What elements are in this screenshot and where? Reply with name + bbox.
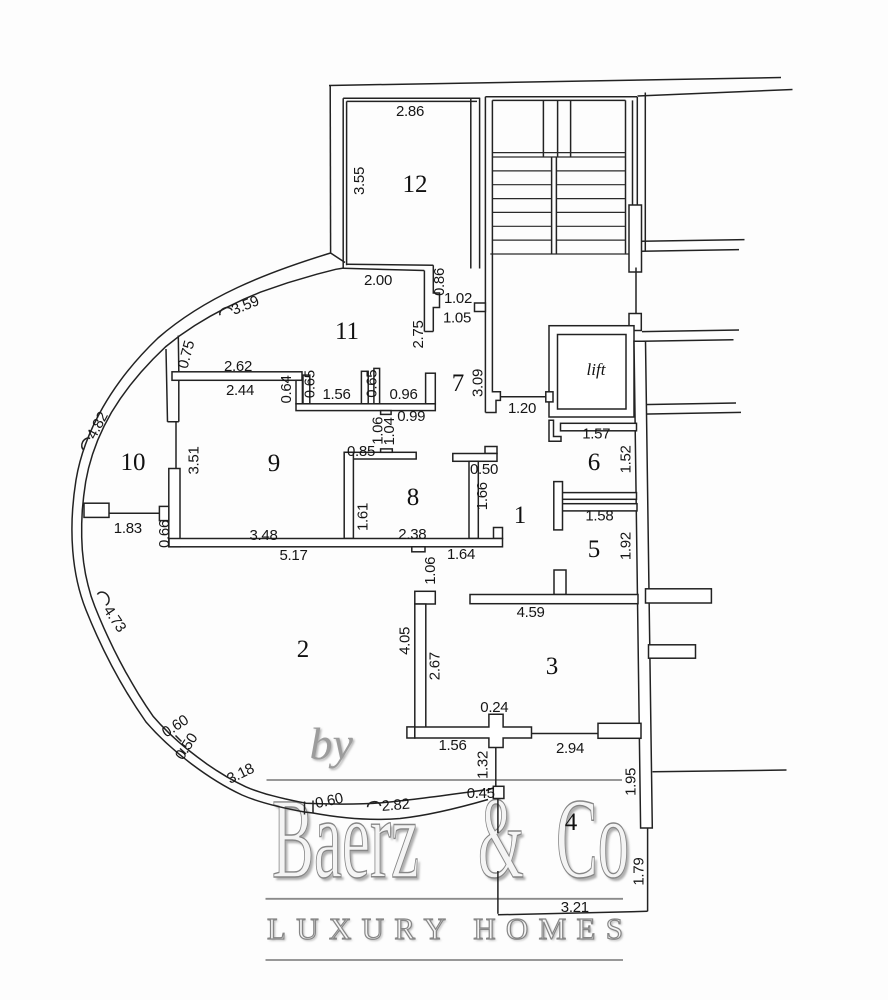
svg-text:1.57: 1.57	[582, 426, 610, 443]
svg-text:6: 6	[588, 449, 601, 476]
svg-text:1.64: 1.64	[447, 546, 475, 563]
svg-text:0.24: 0.24	[480, 699, 508, 716]
svg-text:2.75: 2.75	[410, 321, 427, 349]
svg-text:0.99: 0.99	[397, 408, 425, 425]
svg-text:0.65: 0.65	[302, 370, 319, 398]
svg-text:3.48: 3.48	[250, 527, 278, 544]
svg-text:1.95: 1.95	[623, 768, 640, 796]
svg-text:lift: lift	[587, 360, 607, 379]
svg-text:1.56: 1.56	[439, 737, 467, 754]
svg-text:12: 12	[403, 171, 428, 198]
svg-text:8: 8	[407, 484, 420, 511]
svg-text:Co: Co	[556, 775, 629, 902]
svg-text:1.02: 1.02	[444, 290, 472, 307]
svg-text:0.96: 0.96	[390, 386, 418, 403]
svg-text:4.59: 4.59	[517, 604, 545, 621]
svg-text:2: 2	[297, 636, 310, 663]
svg-text:2.44: 2.44	[226, 382, 254, 399]
svg-text:2.00: 2.00	[364, 272, 392, 289]
svg-text:0.45: 0.45	[467, 785, 495, 802]
svg-text:11: 11	[335, 318, 359, 345]
svg-text:1: 1	[514, 502, 527, 529]
svg-text:1.79: 1.79	[630, 858, 647, 886]
svg-text:2.38: 2.38	[398, 526, 426, 543]
svg-text:3.55: 3.55	[351, 167, 368, 195]
svg-text:1.52: 1.52	[617, 445, 634, 473]
svg-text:1.92: 1.92	[617, 532, 634, 560]
svg-text:5.17: 5.17	[280, 547, 308, 564]
svg-text:2.67: 2.67	[426, 652, 443, 680]
svg-text:7: 7	[452, 370, 465, 397]
svg-text:2.62: 2.62	[224, 358, 252, 375]
svg-text:3: 3	[546, 653, 559, 680]
svg-text:1.04: 1.04	[381, 418, 398, 446]
svg-text:2.82: 2.82	[381, 796, 410, 815]
svg-text:4.05: 4.05	[396, 627, 413, 655]
svg-text:Baerz: Baerz	[272, 775, 419, 902]
svg-text:0.50: 0.50	[470, 461, 498, 478]
svg-text:0.64: 0.64	[278, 376, 295, 404]
svg-text:3.51: 3.51	[186, 447, 203, 475]
svg-text:4: 4	[565, 809, 578, 836]
svg-text:1.83: 1.83	[114, 520, 142, 537]
svg-text:2.86: 2.86	[396, 103, 424, 120]
svg-text:0.65: 0.65	[363, 370, 380, 398]
svg-text:0.66: 0.66	[156, 520, 173, 548]
svg-text:1.61: 1.61	[355, 503, 372, 531]
svg-text:1.32: 1.32	[475, 751, 492, 779]
svg-text:1.58: 1.58	[585, 508, 613, 525]
svg-text:9: 9	[268, 450, 281, 477]
svg-text:10: 10	[121, 449, 146, 476]
svg-text:1.06: 1.06	[422, 557, 439, 585]
svg-text:5: 5	[588, 536, 601, 563]
svg-text:1.20: 1.20	[508, 400, 536, 417]
svg-text:2.94: 2.94	[556, 740, 584, 757]
svg-text:by: by	[310, 718, 354, 769]
svg-text:1.66: 1.66	[474, 482, 491, 510]
svg-text:3.21: 3.21	[561, 899, 589, 916]
svg-text:0.85: 0.85	[347, 443, 375, 460]
svg-text:1.56: 1.56	[323, 386, 351, 403]
svg-text:3.09: 3.09	[470, 369, 487, 397]
svg-text:1.05: 1.05	[443, 310, 471, 327]
